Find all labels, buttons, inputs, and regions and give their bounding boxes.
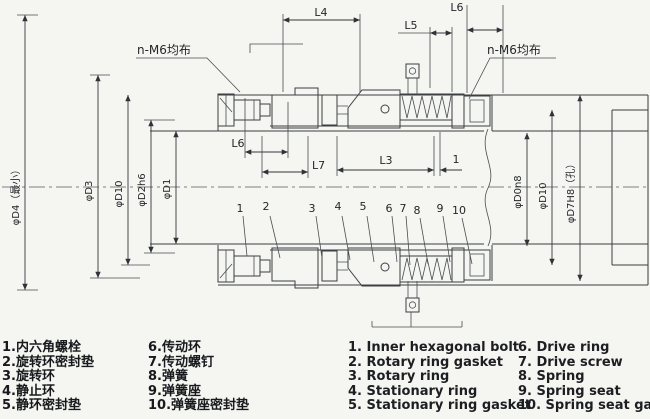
- dim-label-d10-right: φD10: [538, 182, 549, 209]
- hex-bolt-shank: [234, 100, 260, 120]
- dim-label-d3: φD3: [84, 181, 95, 202]
- legend-item-en-8: 8. Spring: [518, 370, 650, 385]
- legend-item-en-6: 6. Drive ring: [518, 341, 650, 356]
- dim-label-d10-left: φD10: [114, 180, 125, 207]
- drive-pin: [381, 105, 389, 113]
- callout-3: 3: [309, 202, 316, 215]
- upper-seal-assembly: [218, 64, 492, 131]
- callout-leaders: [243, 216, 472, 265]
- legend-item-zh-7: 7.传动螺钉: [148, 356, 249, 371]
- dim-label-L5: L5: [404, 19, 417, 32]
- mechanical-seal-drawing: L4 L5 L6 L6 L7 L3 1 φD4（最小） φD3 φD10: [0, 0, 650, 341]
- drive-screw-circle: [409, 68, 415, 74]
- callout-7: 7: [400, 202, 407, 215]
- screw-notes: n-M6均布 n-M6均布: [136, 43, 556, 99]
- rotary-ring-section: [348, 90, 400, 128]
- legend-zh-col1: 1.内六角螺栓 2.旋转环密封垫 3.旋转环 4.静止环 5.静环密封垫: [2, 341, 94, 414]
- dim-label-gap1: 1: [453, 153, 460, 166]
- drive-ring-bolt: [464, 96, 490, 126]
- ext-lines-L4: [283, 14, 360, 92]
- drive-ring-bolt-socket: [470, 100, 484, 122]
- legend-item-zh-8: 8.弹簧: [148, 370, 249, 385]
- dim-label-d0n8: φD0n8: [513, 175, 524, 208]
- legend-item-en-7: 7. Drive screw: [518, 356, 650, 371]
- dim-label-L4: L4: [314, 6, 327, 19]
- callout-10: 10: [452, 204, 466, 217]
- stationary-ring-gasket-section: [322, 95, 337, 125]
- note-right-screws: n-M6均布: [487, 43, 541, 57]
- legend-item-zh-10: 10.弹簧座密封垫: [148, 399, 249, 414]
- reference-bracket: [250, 44, 303, 53]
- leader-left-screws: [136, 58, 240, 92]
- legend-item-zh-5: 5.静环密封垫: [2, 399, 94, 414]
- legend-item-en-4: 4. Stationary ring: [348, 385, 531, 400]
- hex-bolt-tip: [260, 104, 270, 116]
- legend-zh-col2: 6.传动环 7.传动螺钉 8.弹簧 9.弹簧座 10.弹簧座密封垫: [148, 341, 249, 414]
- legend-item-en-5: 5. Stationary ring gasket: [348, 399, 531, 414]
- legend-item-zh-6: 6.传动环: [148, 341, 249, 356]
- callout-9: 9: [437, 202, 444, 215]
- callout-4: 4: [335, 200, 342, 213]
- callout-8: 8: [414, 204, 421, 217]
- ticks-d4: [17, 15, 38, 290]
- legend-en-col1: 1. Inner hexagonal bolt 2. Rotary ring g…: [348, 341, 531, 414]
- lower-detail-bracket: [372, 312, 462, 327]
- dim-label-L6-mid: L6: [231, 137, 244, 150]
- legend: 1.内六角螺栓 2.旋转环密封垫 3.旋转环 4.静止环 5.静环密封垫 6.传…: [0, 341, 650, 419]
- ext-lines-L5: [398, 27, 452, 92]
- dim-label-d2h6: φD2h6: [137, 173, 148, 206]
- spring-seat-section: [452, 94, 464, 128]
- drive-screw-legs: [408, 78, 417, 95]
- callout-6: 6: [386, 202, 393, 215]
- legend-en-col2: 6. Drive ring 7. Drive screw 8. Spring 9…: [518, 341, 650, 414]
- right-dimensions: φD0n8 φD10 φD7H8（孔）: [513, 95, 580, 281]
- legend-item-zh-3: 3.旋转环: [2, 370, 94, 385]
- ticks-d3: [90, 75, 140, 278]
- dim-label-L7: L7: [312, 159, 325, 172]
- legend-item-en-2: 2. Rotary ring gasket: [348, 356, 531, 371]
- spring-coil: [402, 96, 451, 118]
- leader-right-screws: [469, 58, 556, 99]
- top-dimensions: L4 L5 L6: [283, 1, 503, 93]
- shaft-break-symbol: [485, 129, 491, 246]
- legend-item-en-9: 9. Spring seat: [518, 385, 650, 400]
- drive-screw-detail: [406, 64, 419, 78]
- lower-seal-assembly: [218, 245, 492, 312]
- dim-label-d4: φD4（最小）: [10, 165, 22, 226]
- note-left-screws: n-M6均布: [137, 43, 191, 57]
- legend-item-en-3: 3. Rotary ring: [348, 370, 531, 385]
- dim-label-d1: φD1: [162, 179, 173, 200]
- legend-item-en-10: 10. Spring seat gasket: [518, 399, 650, 414]
- gland-section: [272, 88, 318, 128]
- dim-label-d7h8: φD7H8（孔）: [565, 159, 577, 224]
- ring-joint-lines: [337, 106, 348, 114]
- callout-2: 2: [263, 200, 270, 213]
- hex-bolt-head-detail: [220, 94, 232, 126]
- legend-item-zh-1: 1.内六角螺栓: [2, 341, 94, 356]
- legend-item-zh-2: 2.旋转环密封垫: [2, 356, 94, 371]
- callout-5: 5: [360, 200, 367, 213]
- dim-label-L6-top: L6: [450, 1, 463, 14]
- housing-right-wall: [612, 95, 648, 285]
- legend-item-en-1: 1. Inner hexagonal bolt: [348, 341, 531, 356]
- dim-label-L3: L3: [379, 154, 392, 167]
- spring-rails: [400, 90, 452, 128]
- middle-dimensions: L6 L7 L3 1: [231, 98, 462, 178]
- callout-1: 1: [237, 202, 244, 215]
